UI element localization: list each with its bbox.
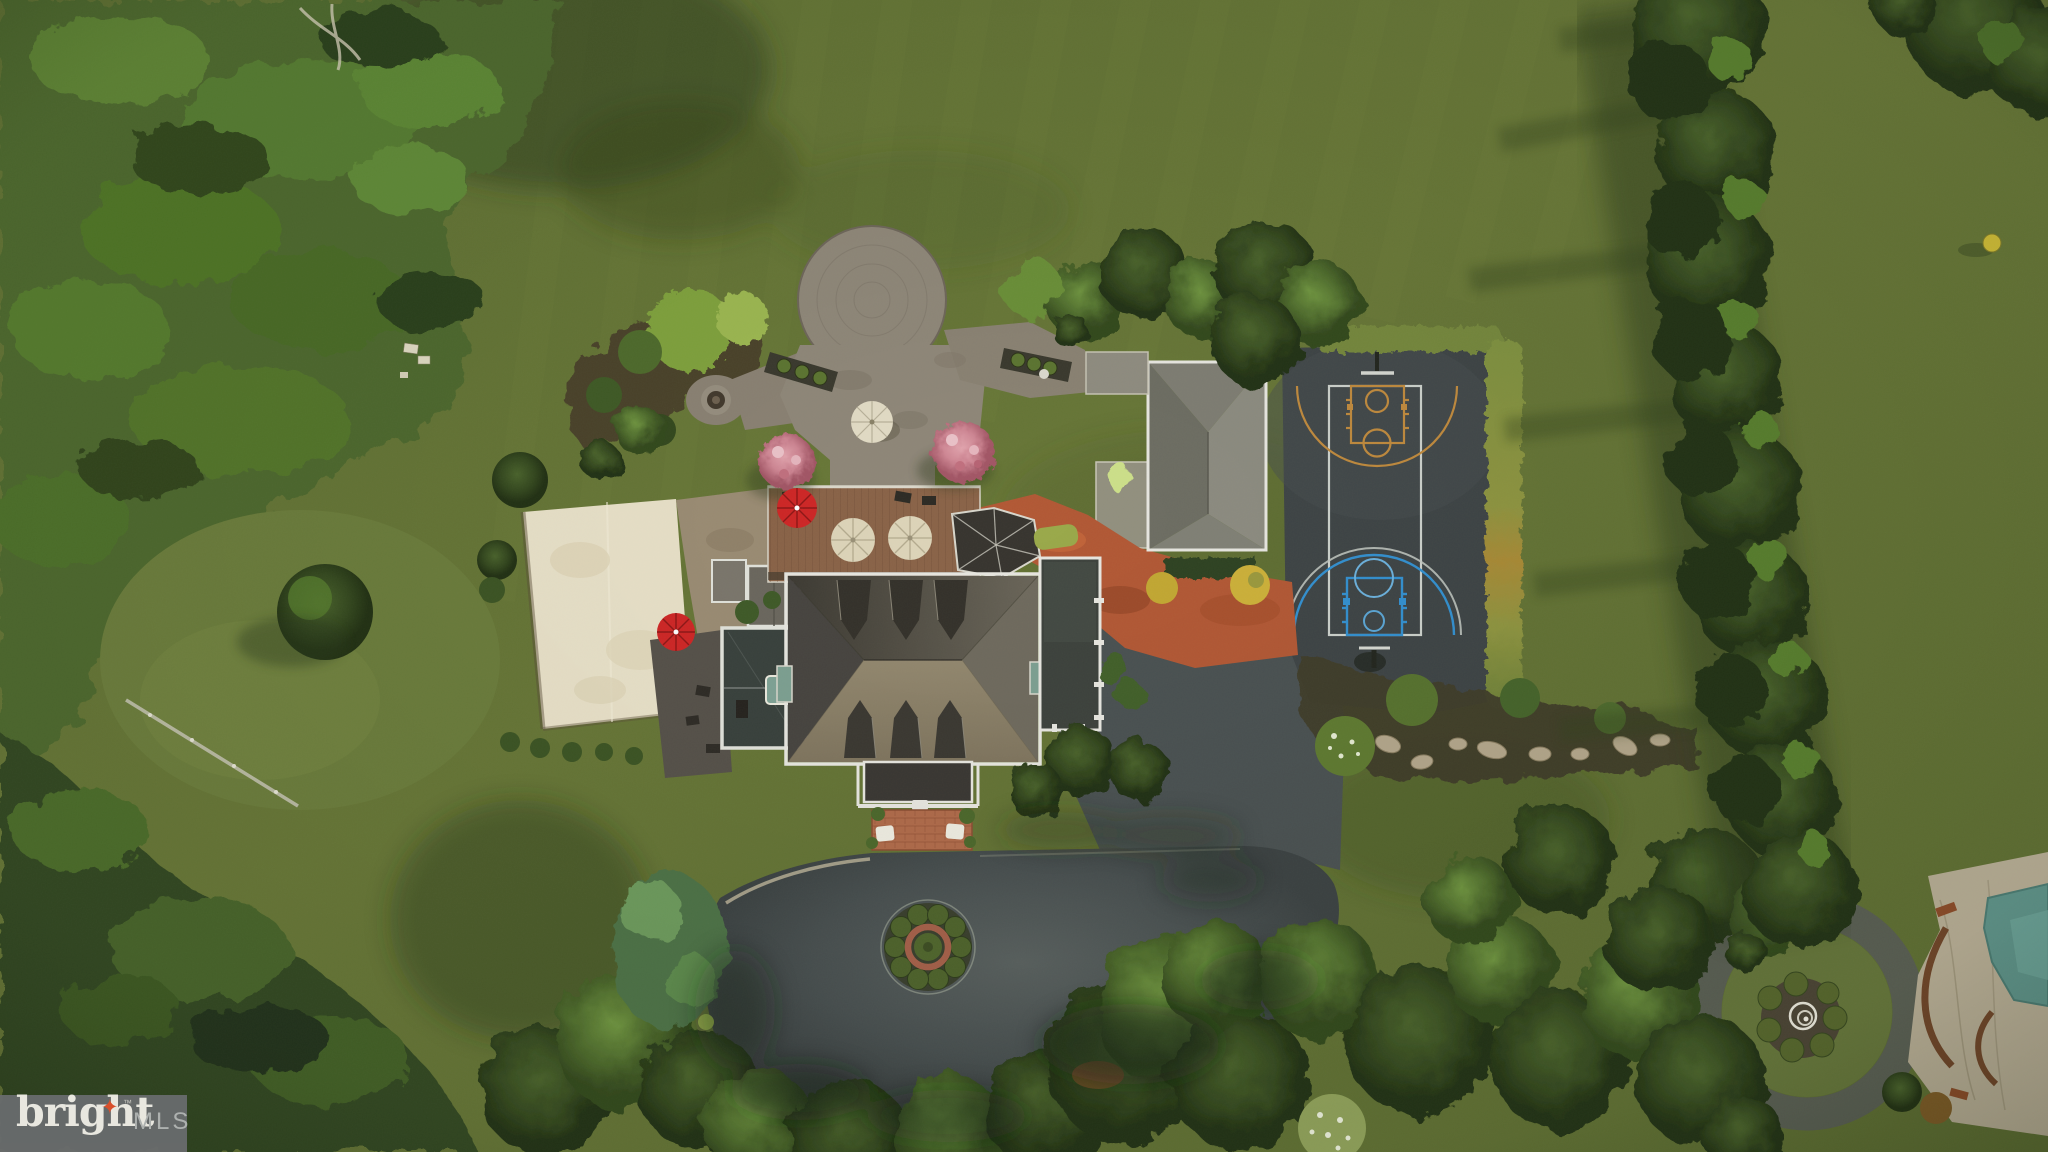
aerial-photo: bright ✦ ™ MLS [0, 0, 2048, 1152]
trademark-symbol: ™ [123, 1098, 132, 1108]
watermark-mls-text: MLS [133, 1108, 191, 1136]
bright-mls-watermark: bright ✦ ™ MLS [0, 1095, 187, 1152]
vignette [0, 0, 2048, 1152]
star-icon: ✦ [101, 1095, 119, 1119]
photo-canvas [0, 0, 2048, 1152]
